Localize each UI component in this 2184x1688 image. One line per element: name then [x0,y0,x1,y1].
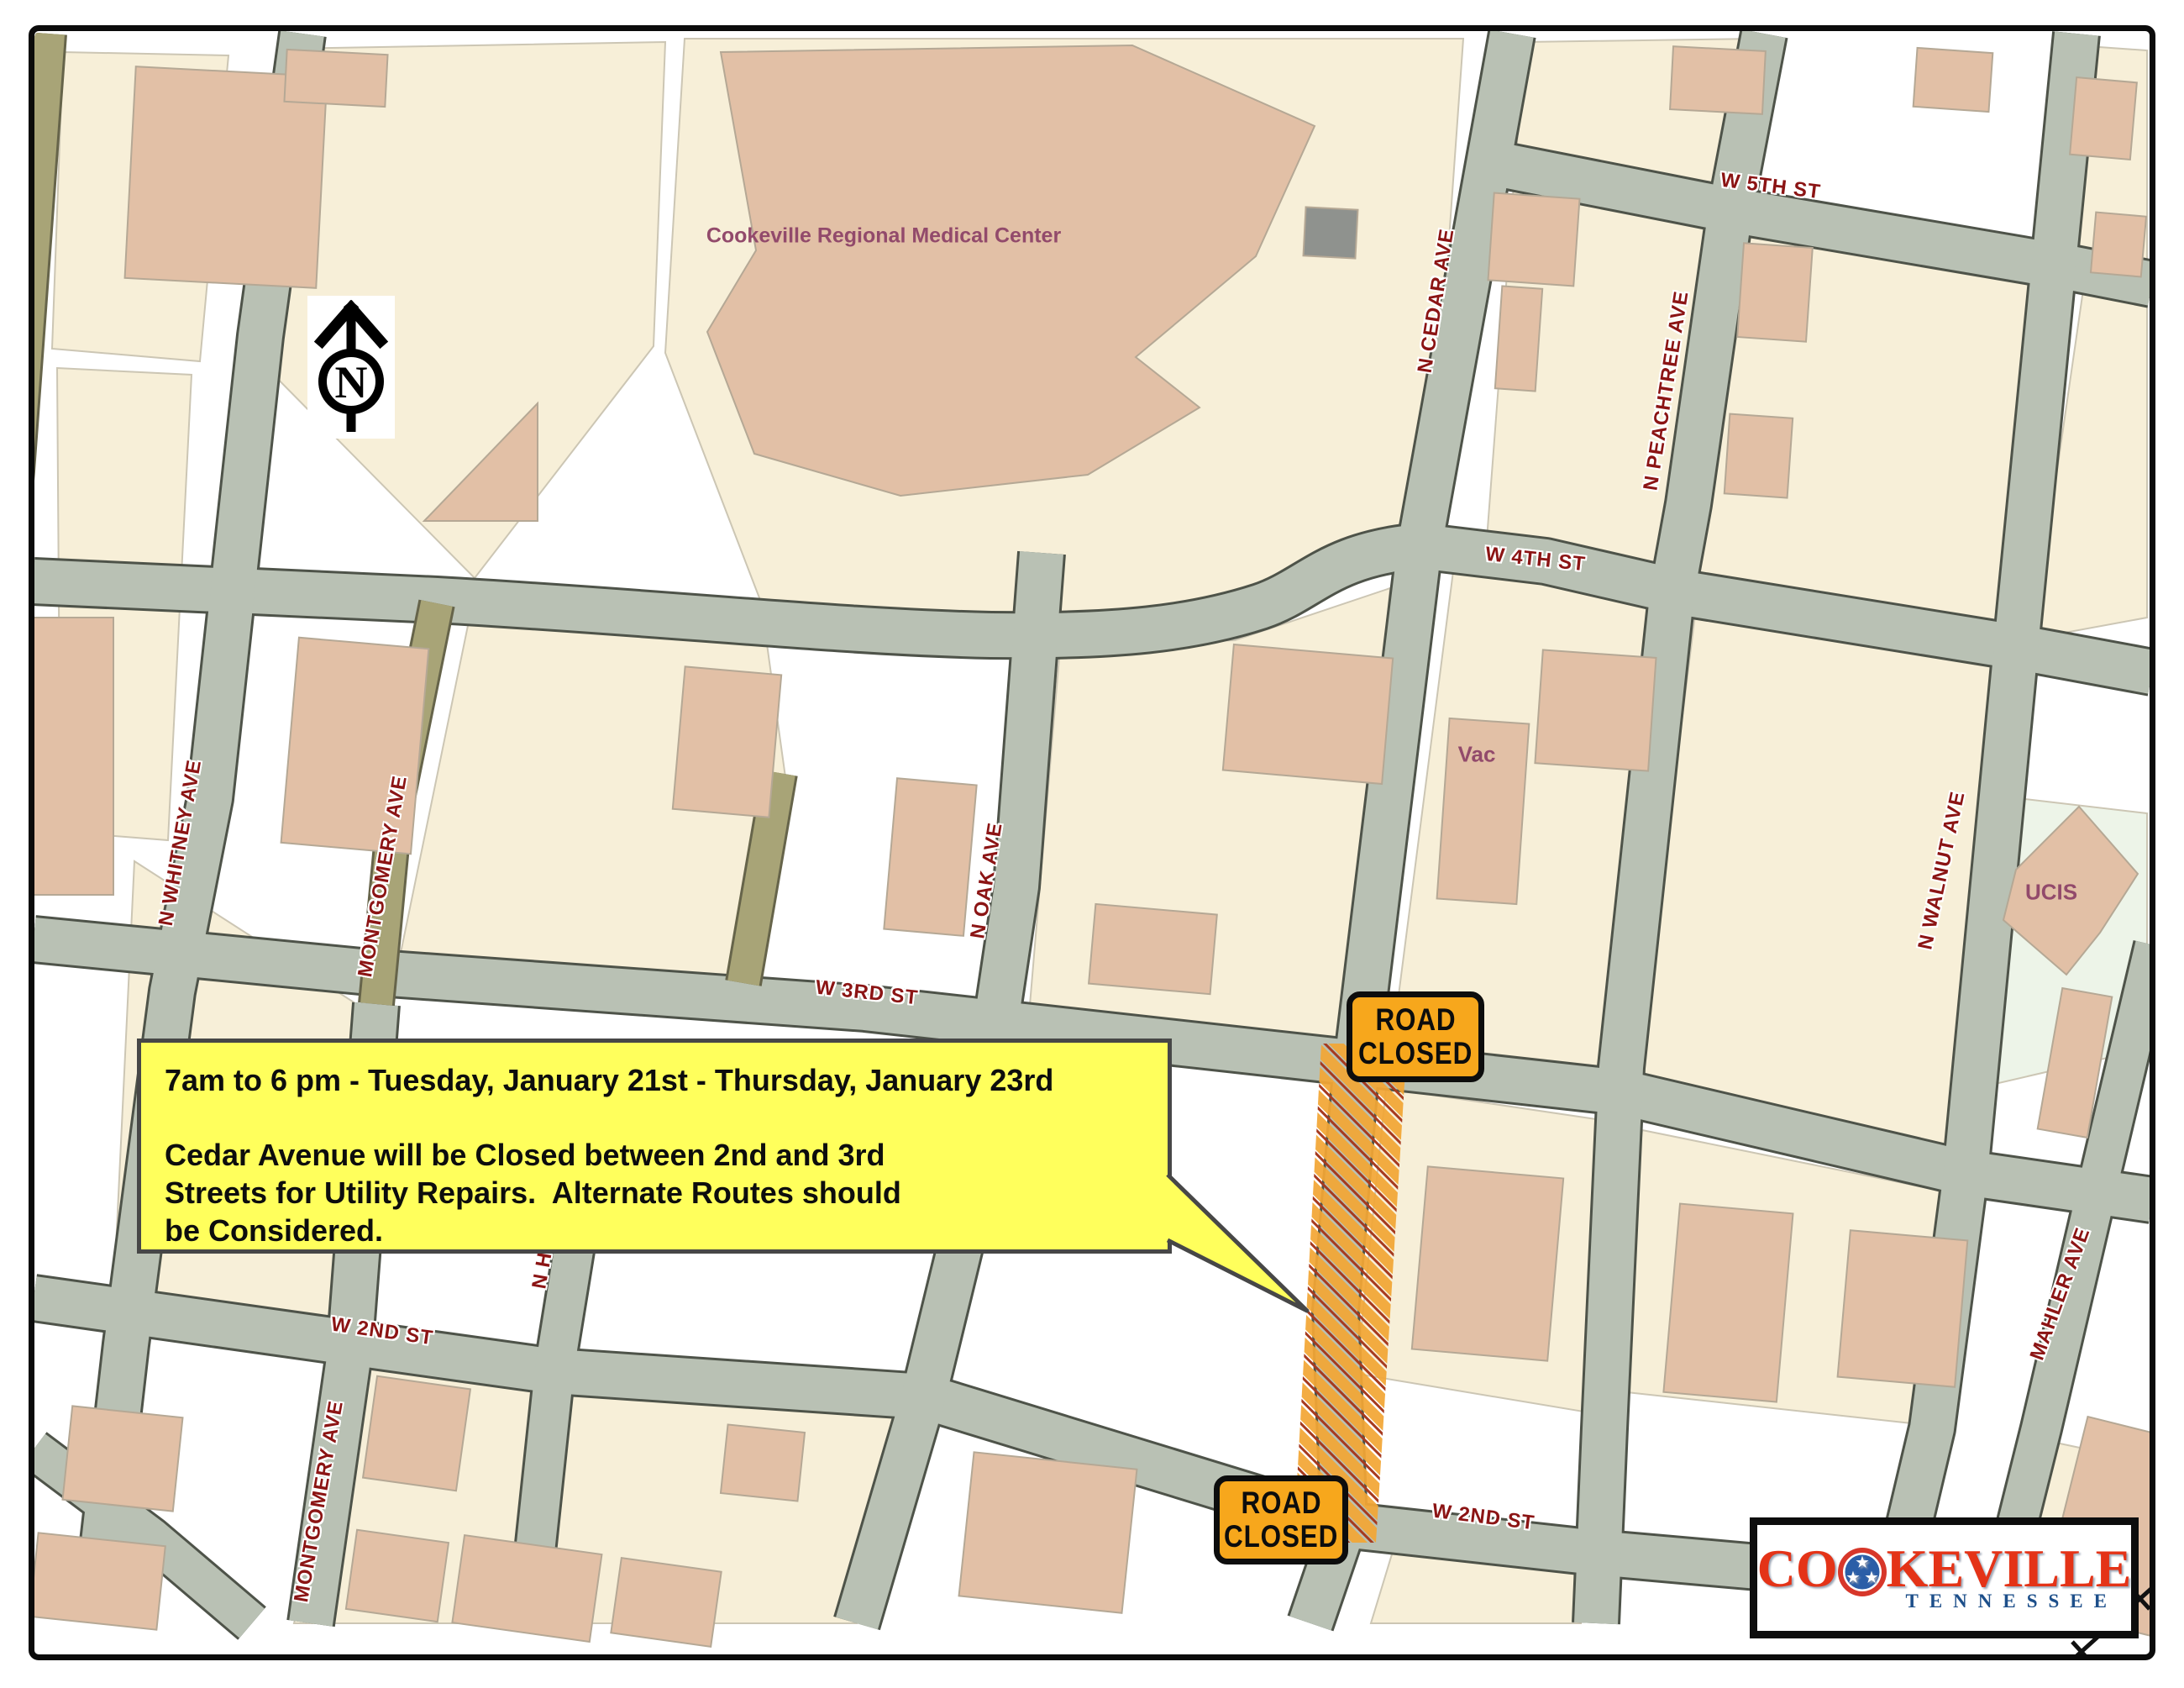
road-closed-sign-line2: CLOSED [1224,1520,1338,1554]
logo-text-suffix: KEVILLE [1887,1543,2132,1594]
road-closed-sign-line1: ROAD [1375,1003,1456,1037]
road-closed-sign-south: ROAD CLOSED [1214,1475,1348,1564]
svg-text:★: ★ [1846,1570,1860,1585]
closure-notice-callout: 7am to 6 pm - Tuesday, January 21st - Th… [137,1039,1172,1254]
svg-text:★: ★ [1856,1554,1869,1570]
medical-center-label: Cookeville Regional Medical Center [706,224,1061,249]
closure-body-line-1: Cedar Avenue will be Closed between 2nd … [165,1136,1159,1174]
road-closed-sign-north: ROAD CLOSED [1347,991,1484,1082]
road-closed-sign-line1: ROAD [1241,1486,1321,1520]
logo-state-text: TENNESSEE [1905,1591,2118,1612]
cookeville-logo: CO ★ ★ ★ KEVILLE TENNESSEE [1750,1517,2139,1638]
north-arrow: N [307,296,395,439]
ucis-label: UCIS [2025,880,2077,906]
closure-schedule-text: 7am to 6 pm - Tuesday, January 21st - Th… [165,1061,1159,1099]
road-closed-sign-line2: CLOSED [1358,1037,1473,1070]
north-letter: N [335,357,368,408]
vac-label: Vac [1458,742,1496,768]
logo-text-prefix: CO [1757,1543,1838,1594]
svg-text:★: ★ [1865,1570,1878,1585]
logo-title: CO ★ ★ ★ KEVILLE [1757,1543,2132,1594]
tristar-emblem-icon: ★ ★ ★ [1837,1547,1887,1597]
closure-body-line-2: Streets for Utility Repairs. Alternate R… [165,1174,1159,1212]
road-closure-map-page: W 5TH ST N CEDAR AVE N PEACHTREE AVE W 4… [0,0,2184,1688]
closure-body-line-3: be Considered. [165,1212,1159,1249]
